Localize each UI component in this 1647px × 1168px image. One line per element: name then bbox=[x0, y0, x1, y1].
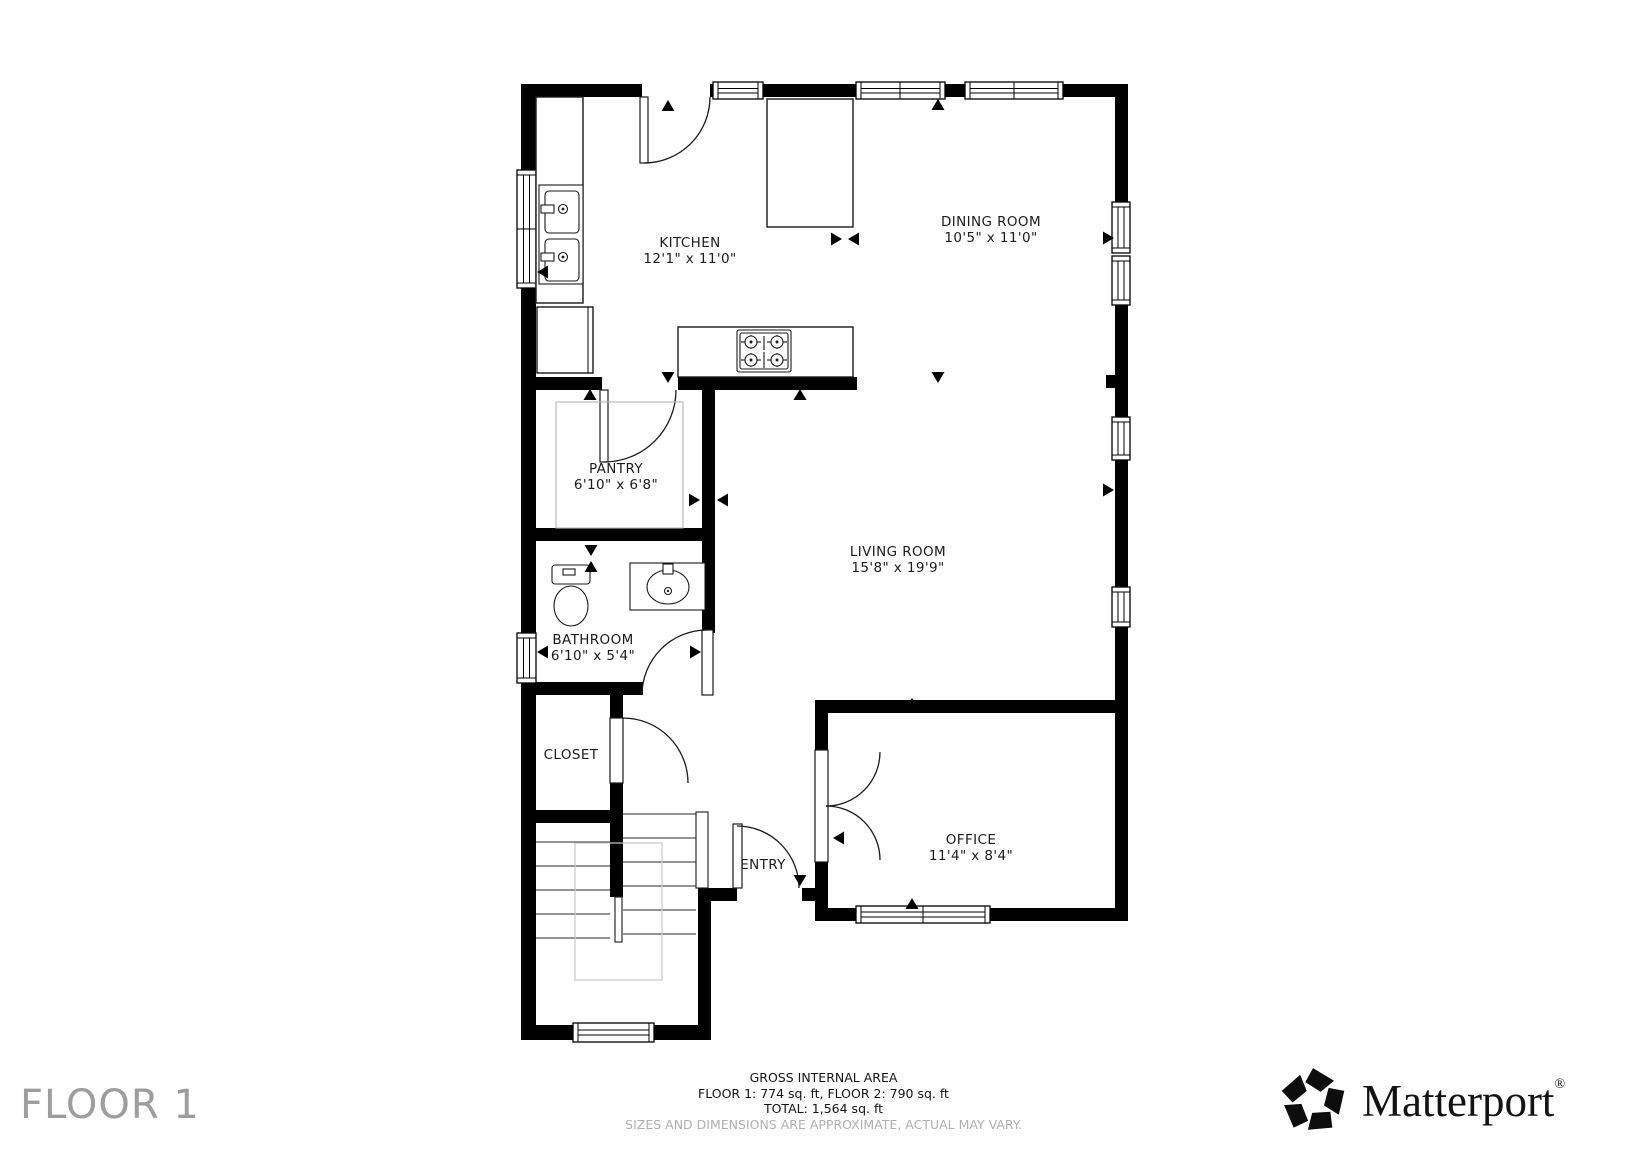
window-icon bbox=[713, 82, 763, 99]
floor-plan-page: { "floor": { "label": "FLOOR 1" }, "room… bbox=[0, 0, 1647, 1164]
floor-plan-drawing: KITCHEN 12'1" x 11'0" DINING ROOM 10'5" … bbox=[0, 0, 1647, 1164]
window-icon bbox=[1112, 202, 1130, 253]
window-icon bbox=[965, 82, 1063, 99]
bathroom-sink-icon bbox=[630, 563, 705, 610]
room-label-bathroom: BATHROOM bbox=[552, 632, 633, 648]
floor-number-label: FLOOR 1 bbox=[20, 1082, 200, 1128]
pantry-door-icon bbox=[600, 390, 676, 462]
room-dims-dining-room: 10'5" x 11'0" bbox=[944, 230, 1037, 246]
room-label-living-room: LIVING ROOM bbox=[850, 544, 946, 560]
matterport-pinwheel-icon bbox=[1278, 1066, 1348, 1136]
window-icon bbox=[573, 1023, 654, 1042]
room-label-pantry: PANTRY bbox=[589, 461, 643, 477]
room-label-office: OFFICE bbox=[946, 832, 997, 848]
bathroom-door-icon bbox=[642, 630, 713, 695]
stair-gap bbox=[615, 897, 622, 942]
room-dims-kitchen: 12'1" x 11'0" bbox=[643, 251, 736, 267]
kitchen-door-icon bbox=[640, 97, 710, 163]
window-icon bbox=[1112, 256, 1130, 305]
bathroom-fixtures bbox=[552, 563, 705, 626]
window-icon bbox=[856, 906, 990, 923]
stove-icon bbox=[737, 330, 791, 372]
window-icon bbox=[1112, 417, 1130, 460]
matterport-logo: Matterport® bbox=[1278, 1066, 1565, 1136]
room-label-dining-room: DINING ROOM bbox=[941, 214, 1041, 230]
room-dims-living-room: 15'8" x 19'9" bbox=[851, 560, 944, 576]
room-label-closet: CLOSET bbox=[544, 747, 599, 763]
room-label-entry: ENTRY bbox=[740, 857, 786, 873]
entry-door-icon bbox=[733, 824, 799, 888]
stair-handrail bbox=[696, 812, 708, 888]
matterport-wordmark: Matterport® bbox=[1362, 1075, 1565, 1127]
refrigerator-icon bbox=[537, 307, 593, 373]
room-label-kitchen: KITCHEN bbox=[659, 235, 720, 251]
window-icon bbox=[1112, 587, 1130, 627]
room-dims-pantry: 6'10" x 6'8" bbox=[574, 477, 658, 493]
closet-door-icon bbox=[610, 718, 688, 783]
toilet-icon bbox=[552, 565, 590, 626]
window-icon bbox=[856, 82, 945, 99]
office-double-door-icon bbox=[815, 750, 880, 862]
kitchen-island bbox=[767, 99, 853, 227]
registered-trademark-symbol: ® bbox=[1554, 1077, 1565, 1092]
window-icon bbox=[517, 633, 536, 683]
room-dims-office: 11'4" x 8'4" bbox=[929, 848, 1013, 864]
window-icon bbox=[517, 170, 536, 288]
room-dims-bathroom: 6'10" x 5'4" bbox=[551, 648, 635, 664]
